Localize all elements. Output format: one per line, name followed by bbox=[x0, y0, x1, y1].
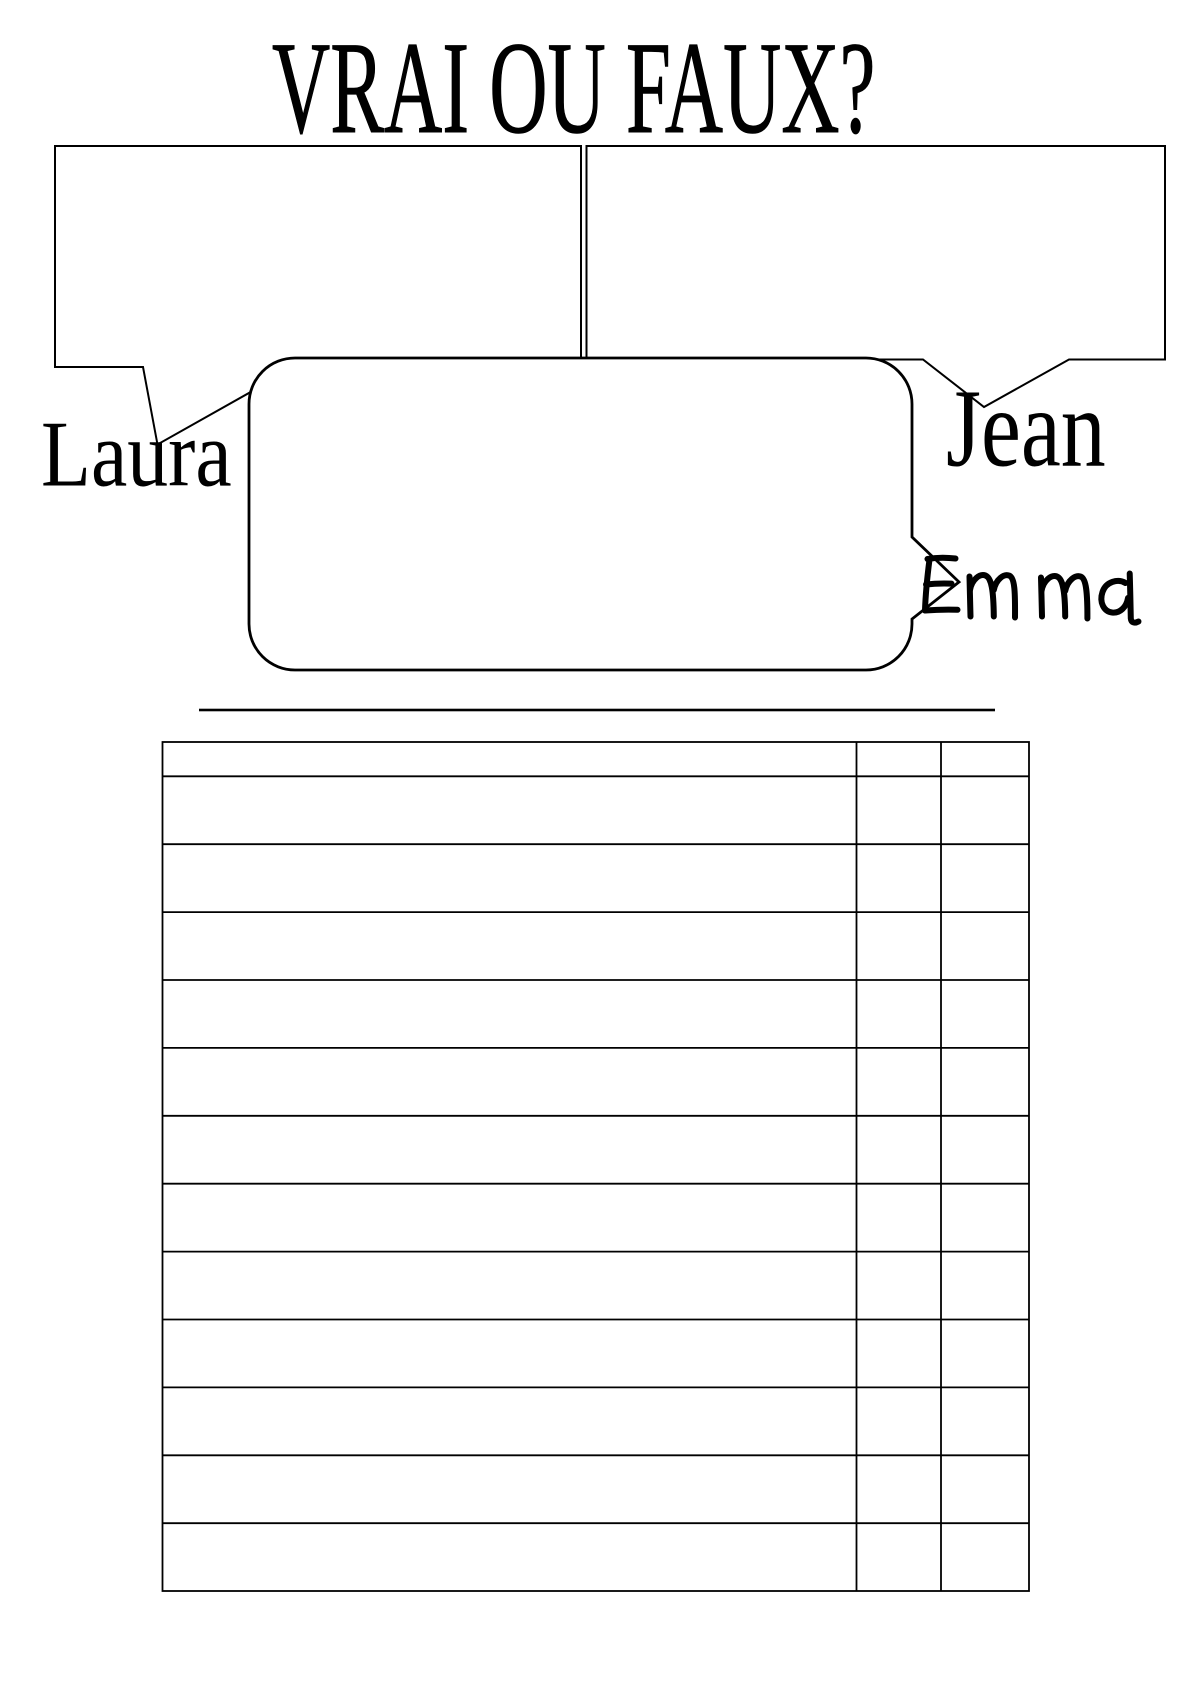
svg-text:VRAI OU FAUX?: VRAI OU FAUX? bbox=[272, 15, 875, 161]
svg-text:Laura: Laura bbox=[41, 402, 232, 507]
svg-text:Jean: Jean bbox=[946, 367, 1106, 490]
